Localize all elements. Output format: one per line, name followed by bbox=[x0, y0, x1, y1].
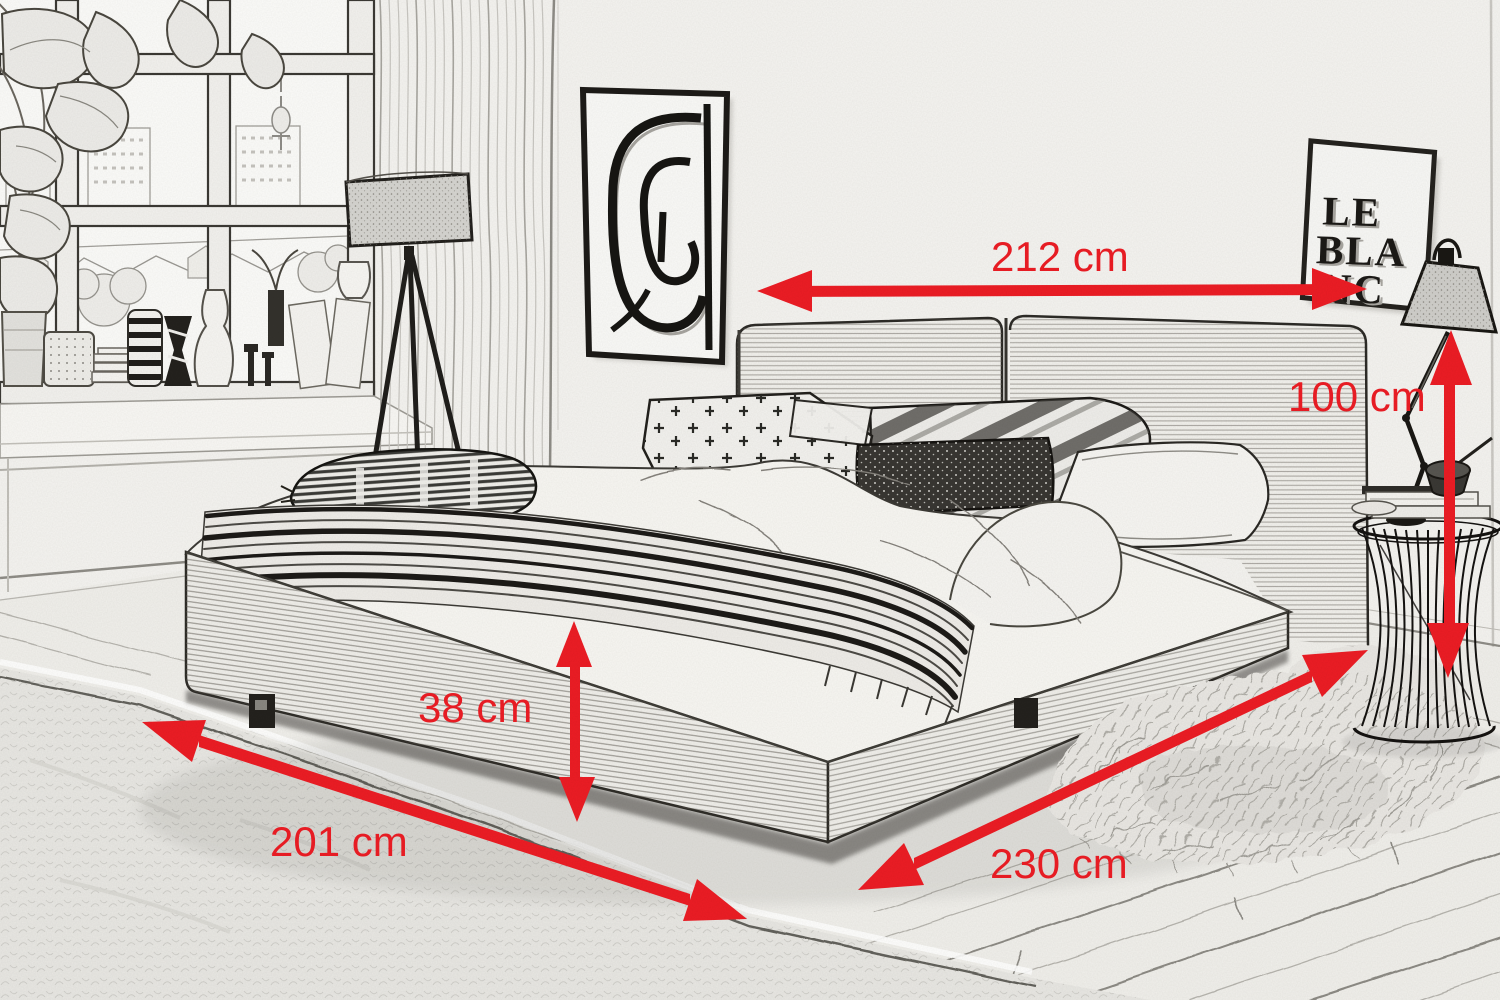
sketch-canvas: LE BLA NC LE BLA NC bbox=[0, 0, 1500, 1000]
bedroom-dimension-sketch: LE BLA NC LE BLA NC bbox=[0, 0, 1500, 1000]
paper-grain-overlay bbox=[0, 0, 1500, 1000]
